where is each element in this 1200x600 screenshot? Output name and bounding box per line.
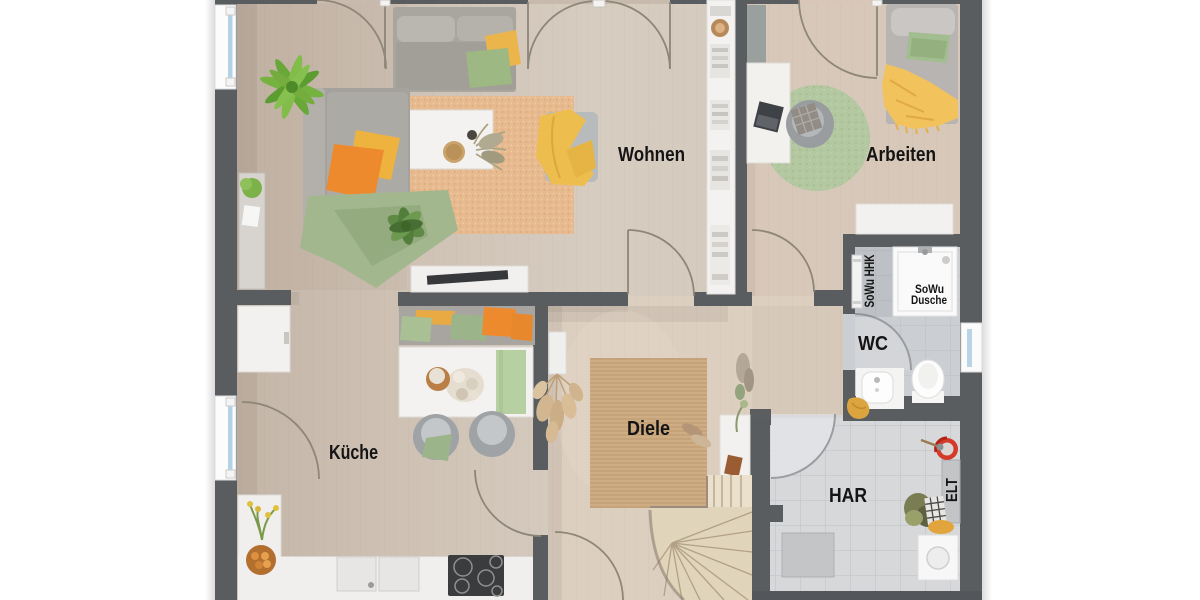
svg-text:Küche: Küche <box>329 441 378 464</box>
svg-text:Wohnen: Wohnen <box>618 143 685 166</box>
svg-text:Dusche: Dusche <box>911 293 947 307</box>
svg-text:Diele: Diele <box>627 417 670 440</box>
svg-text:ELT: ELT <box>944 478 961 502</box>
svg-text:SoWu HHK: SoWu HHK <box>861 255 877 308</box>
svg-text:WC: WC <box>858 332 888 355</box>
svg-text:HAR: HAR <box>829 484 867 507</box>
svg-text:Arbeiten: Arbeiten <box>866 143 936 166</box>
